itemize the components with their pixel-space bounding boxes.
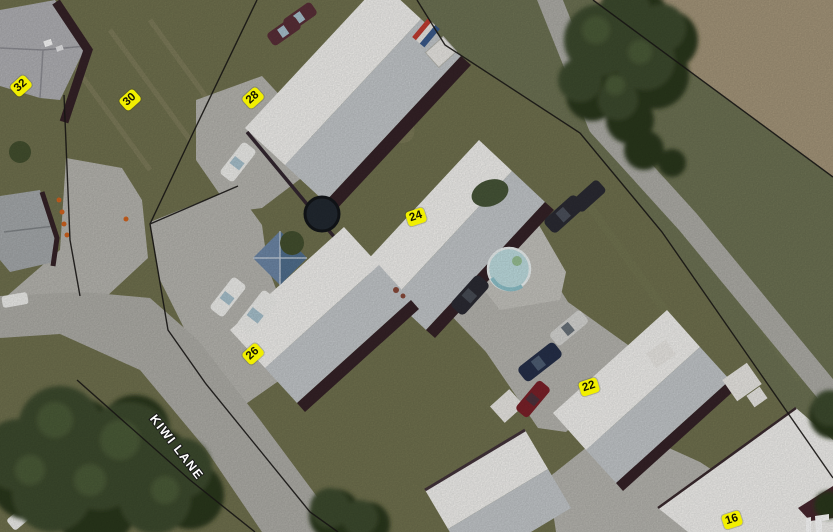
aerial-map[interactable]: 32302824262216 KIWI LANE [0,0,833,532]
aerial-imagery [0,0,833,532]
grain-overlay [0,0,833,532]
